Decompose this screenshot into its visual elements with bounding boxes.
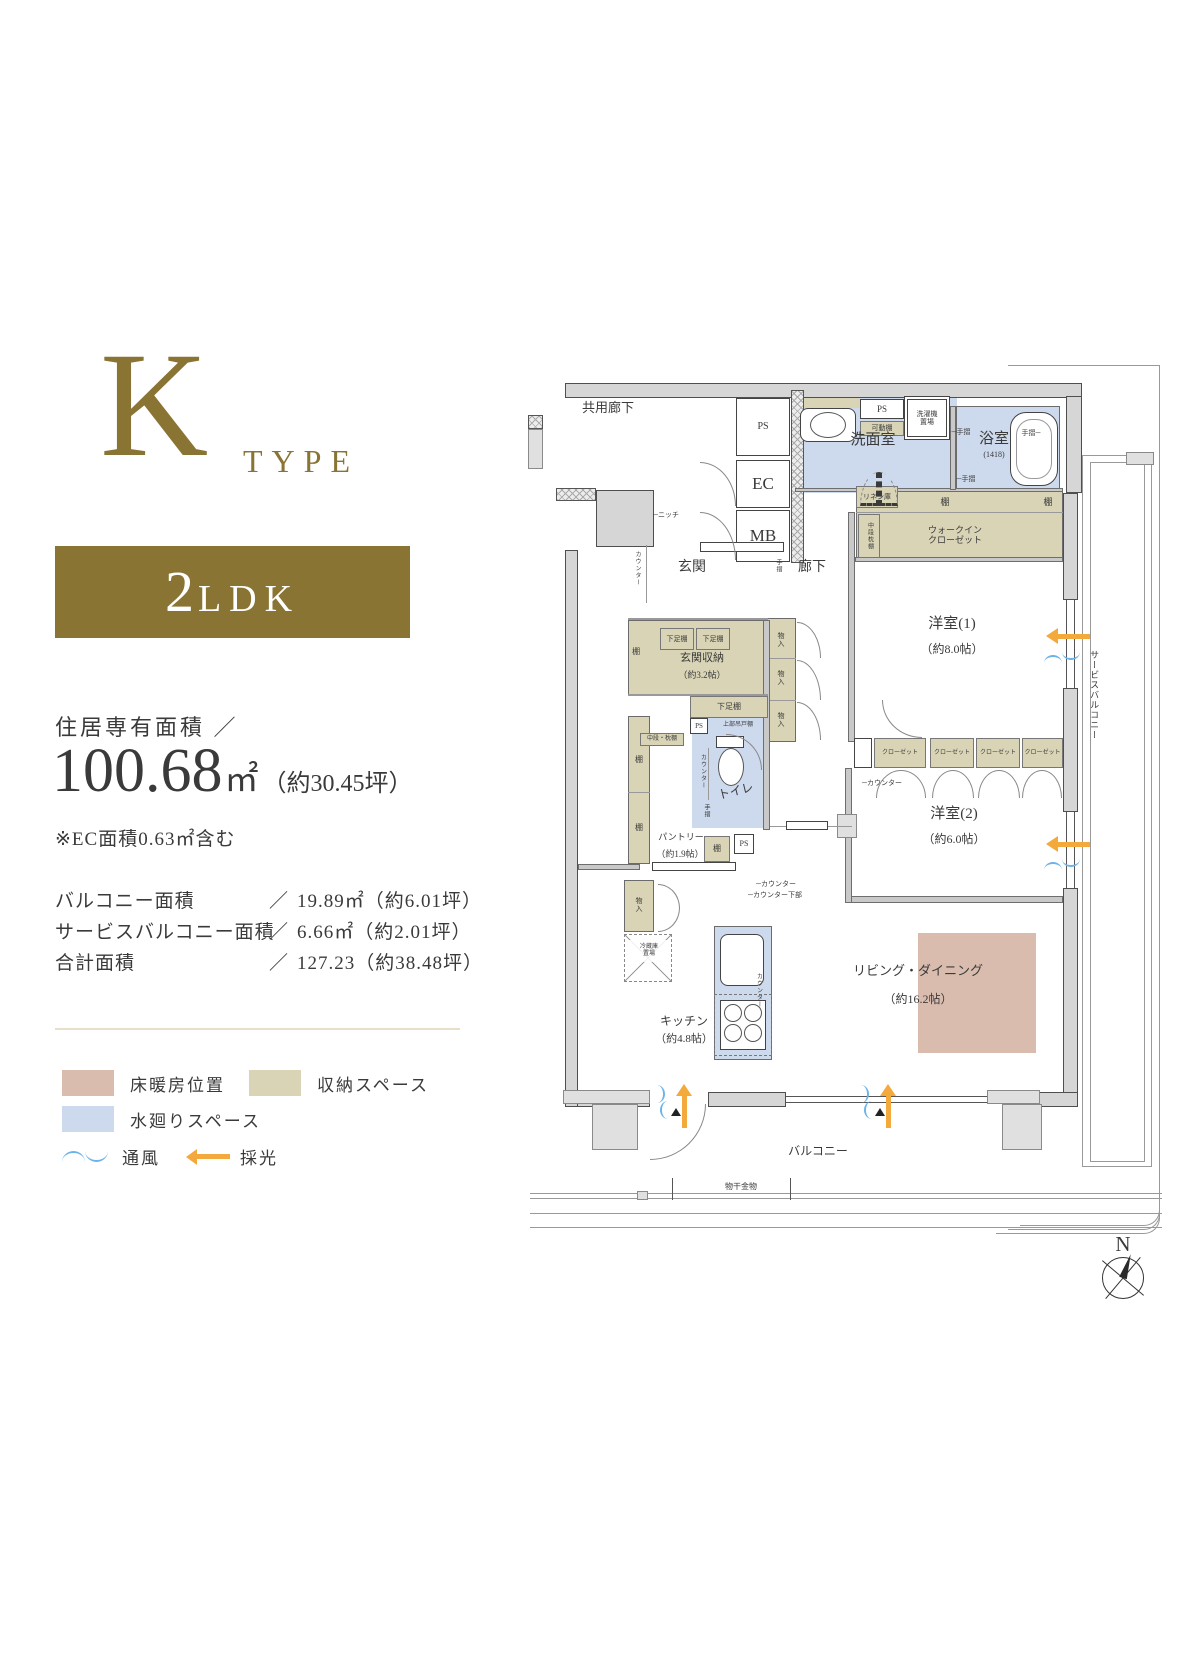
closet-arc-2a xyxy=(932,770,953,798)
label-fridge: 冷蔵庫 置場 xyxy=(628,940,670,962)
compass-north-label: N xyxy=(1101,1233,1145,1255)
label-bedroom1-size: （約8.0帖） xyxy=(904,642,1000,657)
label-monoire-kitchen: 物入 xyxy=(626,888,652,922)
label-genkan-storage-size: （約3.2帖） xyxy=(644,668,760,682)
label-genkan-storage: 玄関収納 xyxy=(644,650,760,666)
balcony-corner-3 xyxy=(1020,1166,1160,1226)
label-nitch: ─ニッチ xyxy=(644,510,688,521)
shoe-shelf-1: 下足棚 xyxy=(660,628,694,650)
door-mb xyxy=(700,512,736,560)
label-bedroom2-size: （約6.0帖） xyxy=(906,832,1002,847)
label-bedroom2: 洋室(2) xyxy=(912,806,996,824)
left-shelf-divider xyxy=(628,792,650,793)
label-shelf-left-1: 棚 xyxy=(630,752,648,768)
label-kyoyo-roka: 共用廊下 xyxy=(566,400,650,416)
label-tesuri-2: 手摺─ xyxy=(1012,428,1050,438)
sliding-door-panel xyxy=(786,821,828,830)
monoire-divider-2 xyxy=(766,700,796,701)
shaft-ps-top: PS xyxy=(736,398,790,456)
label-pantry-size: （約1.9帖） xyxy=(642,848,718,861)
door-monoire-2 xyxy=(797,660,821,700)
label-counter-kitchen: カウンター xyxy=(752,964,764,1016)
genkan-counter-line xyxy=(646,545,647,603)
label-tesuri-3: ─手摺 xyxy=(948,474,984,484)
label-washroom: 洗面室 xyxy=(836,432,910,450)
shaft-ps-pantry: PS xyxy=(734,834,754,854)
stove-burner-1 xyxy=(724,1004,742,1022)
closet-2: クローゼット xyxy=(930,738,974,768)
wall-left xyxy=(565,550,578,1107)
shaft-ec: EC xyxy=(736,460,790,508)
laundry-post-2 xyxy=(790,1178,791,1200)
label-upper-cabinet: 上部吊戸棚 xyxy=(708,720,768,730)
wic-chudan-shelf: 中段枕棚 xyxy=(858,514,880,558)
service-balcony-box xyxy=(1126,452,1154,465)
label-bath-size: (1418) xyxy=(966,450,1022,460)
label-roka: 廊下 xyxy=(790,558,834,578)
wind-wave-balcony-2b xyxy=(864,1101,872,1119)
label-tesuri-toilet: 手摺 xyxy=(700,798,711,824)
light-arrow-balcony-2 xyxy=(880,1084,896,1128)
closet-arc-3a xyxy=(978,770,999,798)
label-counter-bedroom2: ─カウンター xyxy=(862,778,928,788)
floor-plan: PSECMBPS洗濯機 置場PSPS可動棚リネン庫下足棚下足棚下足棚中段・枕棚中… xyxy=(0,0,1200,1680)
label-living-size: （約16.2帖） xyxy=(866,992,970,1007)
tri-balcony-1 xyxy=(671,1108,681,1116)
hatch-entry xyxy=(556,488,596,501)
label-shelf-band-1: 棚 xyxy=(930,494,960,510)
label-balcony: バルコニー xyxy=(778,1144,858,1160)
shoe-shelf-2: 下足棚 xyxy=(696,628,730,650)
laundry-post-1 xyxy=(672,1178,673,1200)
label-counter-genkan: カウンター xyxy=(630,546,643,590)
stove-burner-4 xyxy=(744,1024,762,1042)
label-laundry: 物干金物 xyxy=(710,1181,772,1193)
balcony-drain xyxy=(637,1191,648,1200)
balcony-slab-left xyxy=(563,1090,650,1104)
label-wic: ウォークイン クローゼット xyxy=(888,515,1022,555)
partition-genkan-south xyxy=(628,618,768,620)
label-living: リビング・ダイニング xyxy=(850,962,986,980)
wind-wave-balcony-1a xyxy=(657,1085,665,1103)
door-monoire-3 xyxy=(797,702,821,740)
label-pantry: パントリー xyxy=(646,830,716,844)
monoire-divider-1 xyxy=(766,658,796,659)
partition-kitchen-north xyxy=(578,864,640,870)
label-shelf-band-2: 棚 xyxy=(1038,494,1058,510)
closet-shaft xyxy=(854,738,872,768)
label-monoire-3: 物入 xyxy=(768,704,794,736)
label-counter-ld-2: ─カウンター下部 xyxy=(748,890,834,900)
light-arrow-balcony-1 xyxy=(676,1084,692,1128)
counter-under-box xyxy=(652,862,736,871)
tri-balcony-2 xyxy=(875,1108,885,1116)
hatch-corner xyxy=(528,415,543,429)
label-tesuri-1: ─手摺 xyxy=(944,427,978,437)
wall-top xyxy=(565,383,1082,398)
closet-1: クローゼット xyxy=(874,738,926,768)
door-monoire-1 xyxy=(797,622,821,658)
floorplan-page: { "colors":{"gold":"#8a7434","floor_heat… xyxy=(0,0,1200,1680)
shaft-ps-washroom: PS xyxy=(860,399,904,419)
shaft-ps-toilet: PS xyxy=(690,718,708,734)
partition-hall-east xyxy=(848,512,855,742)
compass-rose-icon xyxy=(1102,1257,1144,1299)
balcony-pillar-left xyxy=(592,1104,638,1150)
label-kitchen: キッチン xyxy=(646,1014,722,1030)
label-tesuri-hall: 手摺 xyxy=(772,552,783,580)
service-balcony-outline-2 xyxy=(1090,462,1145,1162)
label-counter-ld-1: ─カウンター xyxy=(756,879,826,889)
closet-3: クローゼット xyxy=(976,738,1020,768)
compass: N xyxy=(1101,1233,1145,1299)
label-monoire-2: 物入 xyxy=(768,662,794,694)
label-genkan: 玄関 xyxy=(668,558,716,578)
label-counter-toilet: カウンター xyxy=(696,746,708,796)
closet-arc-2b xyxy=(953,770,974,798)
label-shelf-genkan: 棚 xyxy=(628,636,644,666)
light-arrow-bedroom1 xyxy=(1046,628,1090,644)
label-bedroom1: 洋室(1) xyxy=(910,616,994,634)
closet-4: クローゼット xyxy=(1022,738,1063,768)
door-bedroom1 xyxy=(882,700,922,738)
light-arrow-bedroom2 xyxy=(1046,836,1090,852)
wall-corner-stub xyxy=(528,429,543,469)
door-kitchen-storage-b xyxy=(658,908,680,932)
label-monoire-1: 物入 xyxy=(768,624,794,656)
door-ec xyxy=(700,462,736,506)
wall-bottom-mid xyxy=(708,1092,786,1107)
door-kitchen-storage-a xyxy=(658,884,680,908)
chudan-makura-shelf: 中段・枕棚 xyxy=(640,733,684,746)
shoe-shelf-3: 下足棚 xyxy=(690,696,768,718)
label-kitchen-size: （約4.8帖） xyxy=(640,1032,728,1046)
